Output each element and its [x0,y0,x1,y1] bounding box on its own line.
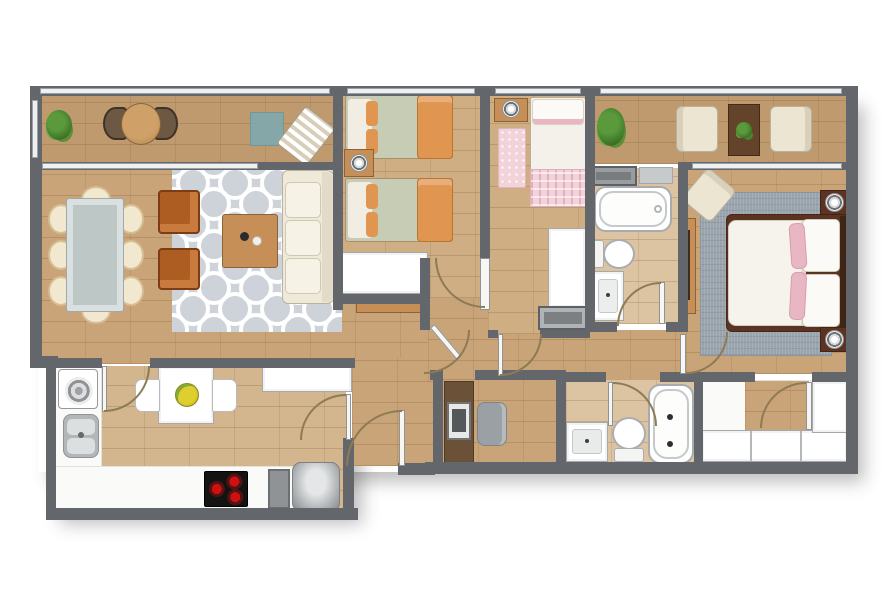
wall-kids-bedroom-bottom [333,294,430,304]
potted-plant-icon [736,122,752,138]
wall-bedroom2-right [585,94,595,330]
bed-pillow-pink [532,99,584,125]
kitchen-pillar [268,469,290,509]
window-top-terrace [600,88,842,94]
dining-table [66,198,124,312]
sofa-cushion [285,220,321,256]
vanity-faucet-icon [585,439,589,443]
wardrobe [548,228,586,308]
wall-kitchen-left [46,358,56,520]
wall-bathroom-bottom-b [666,322,688,332]
fruit-plate [175,383,199,407]
bathtub-drain [667,414,673,420]
sofa-cushion [285,182,321,218]
bed-blanket-plaid [530,169,586,207]
bed-cushion-orange [366,184,378,209]
window-top-balcony [40,88,330,94]
closet-wardrobe-divider [750,431,752,461]
bathroom-sill [639,167,673,184]
door-kitchen-right [346,394,351,440]
toilet-tank [614,448,644,462]
bed-cushion-orange [366,101,378,126]
monitor-screen [452,409,466,432]
table-lamp-icon [825,193,844,212]
armchair-orange [158,190,200,234]
wall-closet-left [694,380,703,464]
closet-wardrobes [701,430,848,462]
refrigerator [292,462,340,512]
cooktop [204,471,248,507]
coffee-table [222,214,278,268]
window-balcony-living [42,163,258,169]
bathtub-drain [667,441,673,447]
table-lamp-icon [825,330,844,349]
wall-bedroom2-bottom-b [540,330,590,338]
washing-machine [58,369,98,409]
wall-kids-bedroom-left [333,94,343,310]
master-bed-pillow [802,219,840,272]
armchair-orange [158,248,200,290]
bathtub-drain [654,205,662,213]
faucet-icon [78,432,84,438]
terrace-armchair [770,106,812,152]
wall-master-bottom-b [812,372,858,382]
window-top-kids-bedroom [347,88,475,94]
plant-icon [46,110,72,140]
pink-rug [498,128,526,188]
wardrobe [338,252,428,294]
floor-plan [0,0,890,600]
wall-nook-top-b [475,370,566,380]
closet-wardrobe-divider [800,431,802,461]
coffee-table-decor [252,236,262,246]
wall-living-kitchen-b [150,358,355,368]
window-terrace-master [692,163,842,169]
window-top-bedroom [495,88,581,94]
bistro-table [121,103,161,145]
gray-cabinet [538,306,588,330]
table-lamp-icon [502,100,520,118]
wall-hall-stub [420,258,430,330]
bathtub-inner [653,389,689,459]
door-closet [806,382,812,430]
sofa-cushion [285,258,321,294]
window-left-balcony [32,100,38,158]
wall-bedroom-divider [480,94,490,258]
plant-icon [597,108,625,146]
wall-bathroom2-left [556,370,566,464]
master-bed-pillow [802,274,840,327]
bed-throw-orange [417,95,453,159]
bed-throw-orange [417,178,453,242]
wall-bottom-right-section [425,462,858,474]
wall-nook-left [433,378,443,464]
master-bed-pink-cushion [788,222,807,269]
wall-kitchen-bottom [46,508,358,520]
toilet [603,239,635,269]
master-bed-pink-cushion [789,272,807,321]
bed-cushion-orange [366,212,378,237]
wall-bathroom-right [678,162,688,332]
wall-bathroom-bottom-a [585,322,617,332]
desk-chair [477,402,507,446]
table-lamp-icon [350,154,368,172]
closet-wardrobe-side [812,381,848,433]
wall-bedroom2-bottom-a [488,330,498,338]
wall-right [846,86,858,474]
vanity-faucet-icon [606,293,610,297]
terrace-armchair [676,106,718,152]
wall-bathroom2-top-b [660,372,678,382]
breakfast-chair [212,379,237,412]
bathroom-ledge [590,166,637,186]
wall-bathroom2-top-a [566,372,606,382]
wall-living-kitchen-a [56,358,102,368]
coffee-table-decor [240,232,249,241]
kitchen-sink-bowl [67,438,95,454]
